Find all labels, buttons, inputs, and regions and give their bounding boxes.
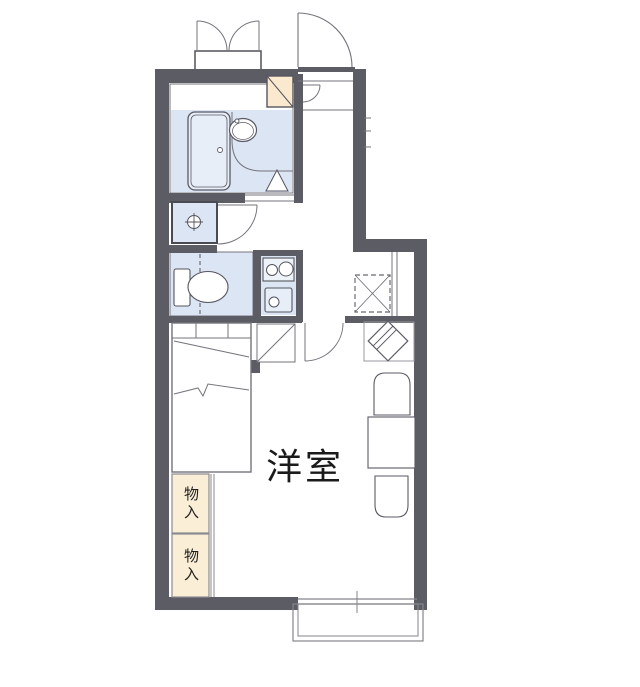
chair-top <box>374 373 410 415</box>
stove-burner-large <box>279 262 293 276</box>
wall-bottom <box>155 597 298 610</box>
bathtub <box>188 112 230 190</box>
sink-drain <box>269 297 279 307</box>
wall-right-lower <box>414 239 427 610</box>
wash-basin <box>230 119 257 142</box>
angled-table-top <box>368 321 408 361</box>
storage-top-label: 物入 <box>172 474 209 533</box>
wall-kitchen-top <box>253 250 302 256</box>
balcony-window <box>293 591 423 641</box>
main-room-door-arc <box>305 323 343 361</box>
wall-entrance-lintel <box>298 67 355 72</box>
washing-machine-pan <box>172 202 217 243</box>
bed-frame <box>172 323 251 472</box>
stove-burner-small <box>267 265 278 276</box>
wall-bathroom-right <box>294 74 303 203</box>
hall-door-arc <box>218 205 257 244</box>
toilet-bowl <box>188 272 228 303</box>
bed <box>172 323 251 472</box>
wall-right-upper <box>353 69 366 252</box>
balcony-inner <box>298 604 418 636</box>
floor-plan: 洋室 物入 物入 <box>0 0 640 687</box>
chair-bottom <box>375 476 408 517</box>
storage-box-door-arc-left <box>197 21 227 51</box>
angled-side-table <box>368 321 408 361</box>
wall-kitchen-right <box>296 250 303 322</box>
wall-toilet-kitchen <box>253 250 261 322</box>
dining-table <box>368 417 415 468</box>
entrance-door <box>298 13 352 67</box>
refrigerator-space <box>355 275 390 312</box>
main-room-label: 洋室 <box>256 447 354 487</box>
entrance-door-arc <box>298 13 352 67</box>
outdoor-storage-box <box>195 21 261 70</box>
storage-bottom-label: 物入 <box>172 534 209 597</box>
storage-box-body <box>195 51 261 70</box>
hall-door <box>218 205 257 244</box>
basin-faucet <box>235 119 239 123</box>
wall-left <box>155 69 169 610</box>
wall-washroom-toilet <box>169 245 217 253</box>
balcony-outer <box>293 604 423 641</box>
storage-box-door-arc-right <box>229 21 259 51</box>
main-room-door <box>305 323 343 361</box>
wall-room-top-left <box>169 316 302 323</box>
bathtub-drain <box>218 148 223 153</box>
water-heater-door-arc <box>303 85 320 102</box>
